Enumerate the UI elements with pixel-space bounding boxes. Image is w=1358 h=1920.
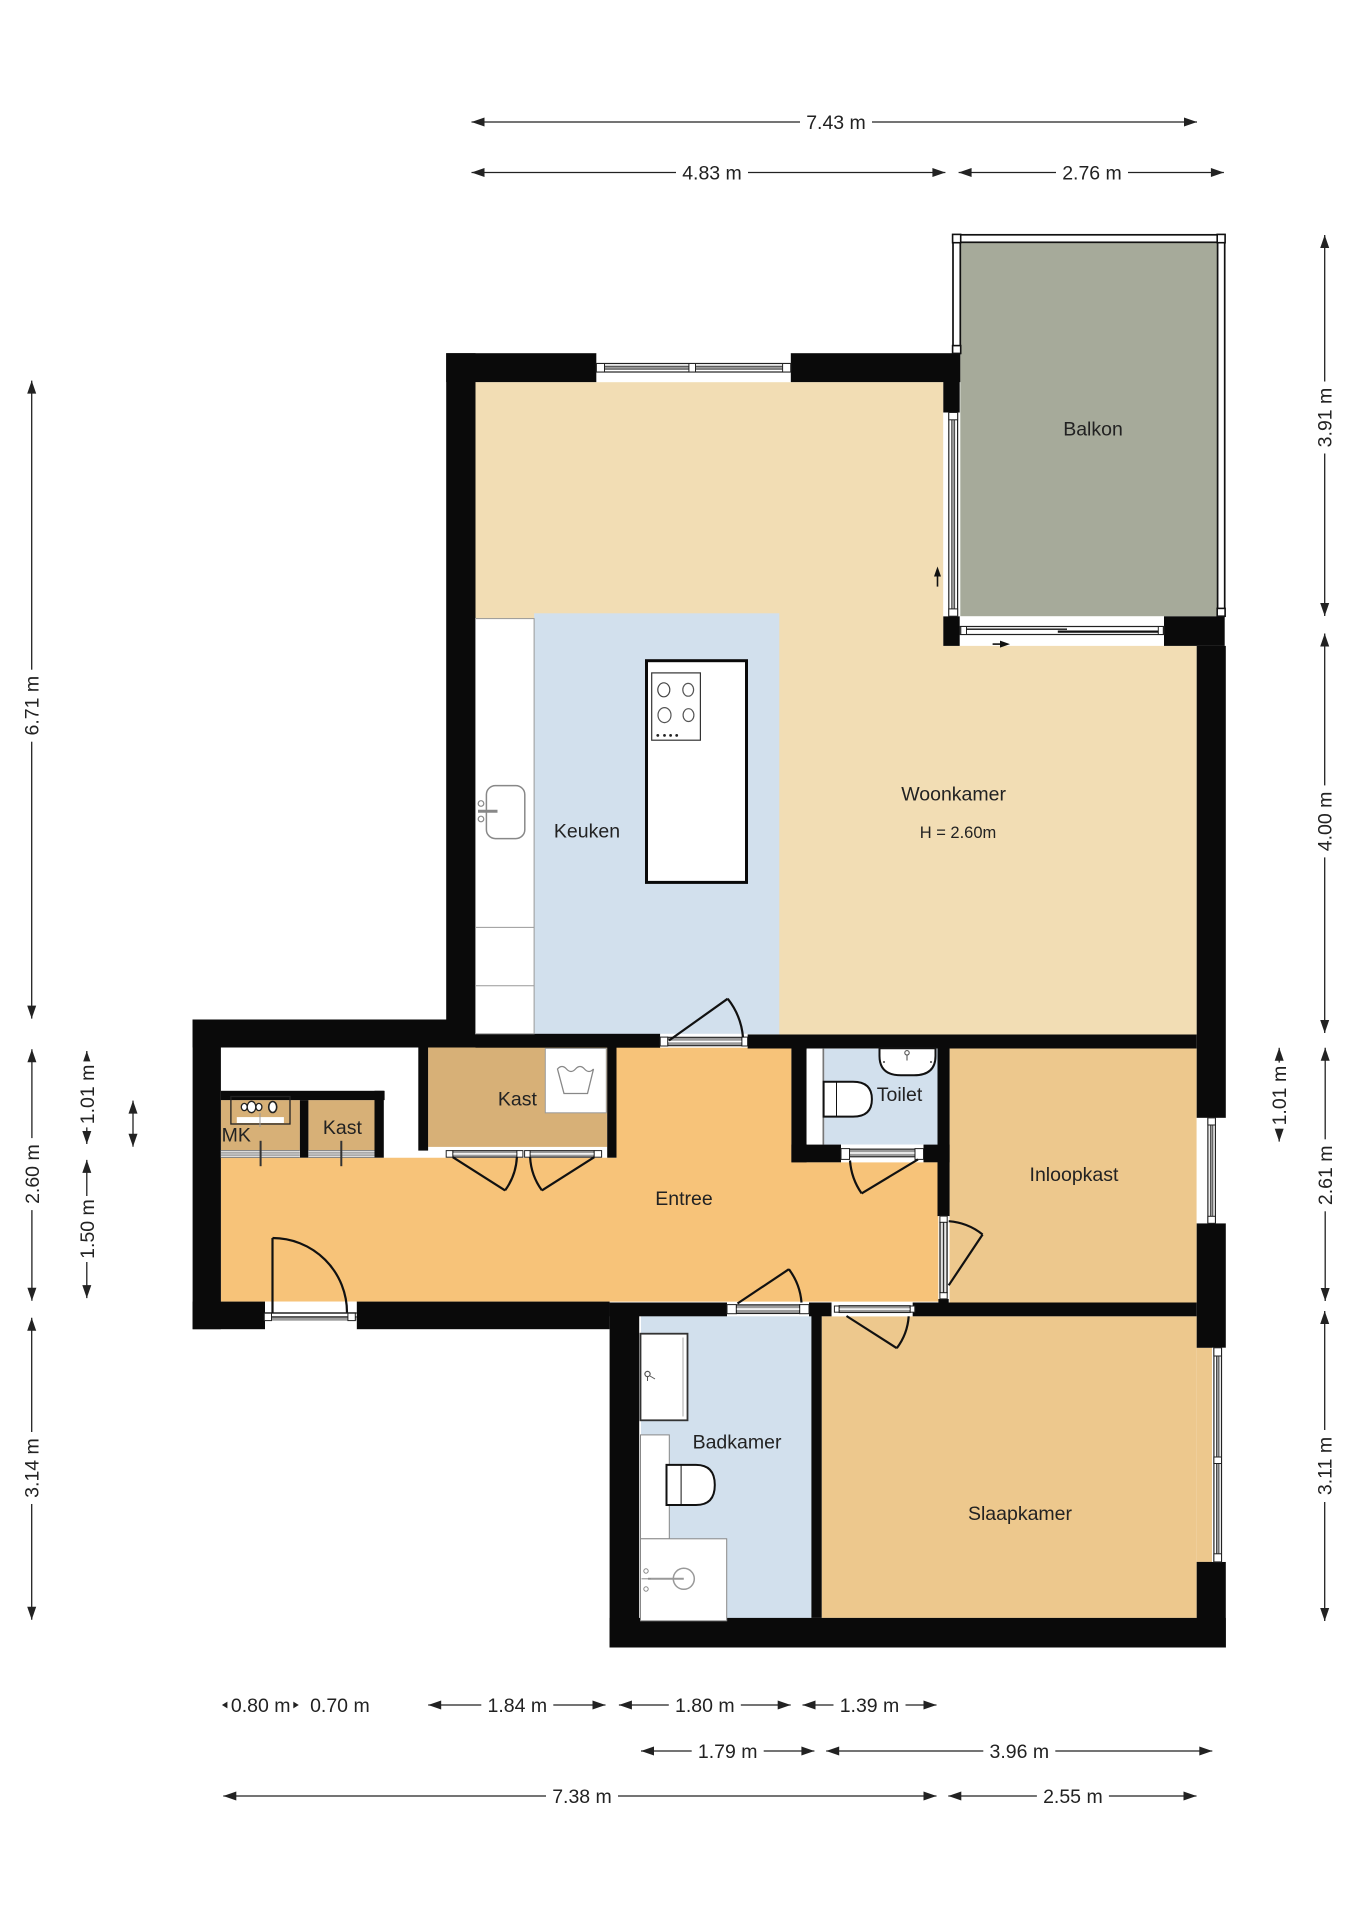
svg-text:0.70 m: 0.70 m — [310, 1695, 370, 1717]
svg-text:2.60 m: 2.60 m — [22, 1144, 44, 1204]
svg-text:4.83 m: 4.83 m — [682, 163, 742, 185]
svg-text:7.43 m: 7.43 m — [806, 112, 866, 134]
svg-text:1.80 m: 1.80 m — [675, 1695, 735, 1717]
svg-text:1.01 m: 1.01 m — [77, 1065, 99, 1125]
svg-text:4.00 m: 4.00 m — [1315, 792, 1337, 852]
svg-text:1.84 m: 1.84 m — [487, 1695, 547, 1717]
svg-text:MK: MK — [222, 1124, 251, 1146]
svg-text:1.50 m: 1.50 m — [77, 1199, 99, 1259]
svg-text:H = 2.60m: H = 2.60m — [920, 824, 997, 842]
svg-text:1.79 m: 1.79 m — [698, 1741, 758, 1763]
svg-text:1.39 m: 1.39 m — [840, 1695, 900, 1717]
svg-text:2.55 m: 2.55 m — [1043, 1786, 1103, 1808]
svg-text:Kast: Kast — [323, 1117, 363, 1139]
svg-text:6.71 m: 6.71 m — [22, 676, 44, 736]
svg-text:Keuken: Keuken — [554, 821, 620, 843]
svg-text:3.11 m: 3.11 m — [1315, 1437, 1337, 1495]
svg-text:Balkon: Balkon — [1063, 419, 1123, 441]
svg-text:Kast: Kast — [498, 1088, 538, 1110]
svg-text:1.01 m: 1.01 m — [1269, 1066, 1291, 1126]
svg-text:Slaapkamer: Slaapkamer — [968, 1503, 1073, 1525]
svg-text:3.96 m: 3.96 m — [989, 1741, 1049, 1763]
svg-text:3.14 m: 3.14 m — [22, 1438, 44, 1498]
svg-text:Woonkamer: Woonkamer — [901, 784, 1006, 806]
svg-text:3.91 m: 3.91 m — [1315, 388, 1337, 448]
svg-text:0.80 m: 0.80 m — [231, 1695, 291, 1717]
svg-text:Entree: Entree — [655, 1188, 712, 1210]
svg-text:2.61 m: 2.61 m — [1315, 1145, 1337, 1205]
svg-text:Toilet: Toilet — [877, 1084, 923, 1106]
svg-text:7.38 m: 7.38 m — [552, 1786, 612, 1808]
svg-text:2.76 m: 2.76 m — [1062, 163, 1122, 185]
svg-text:Badkamer: Badkamer — [693, 1432, 782, 1454]
svg-text:Inloopkast: Inloopkast — [1030, 1164, 1119, 1186]
